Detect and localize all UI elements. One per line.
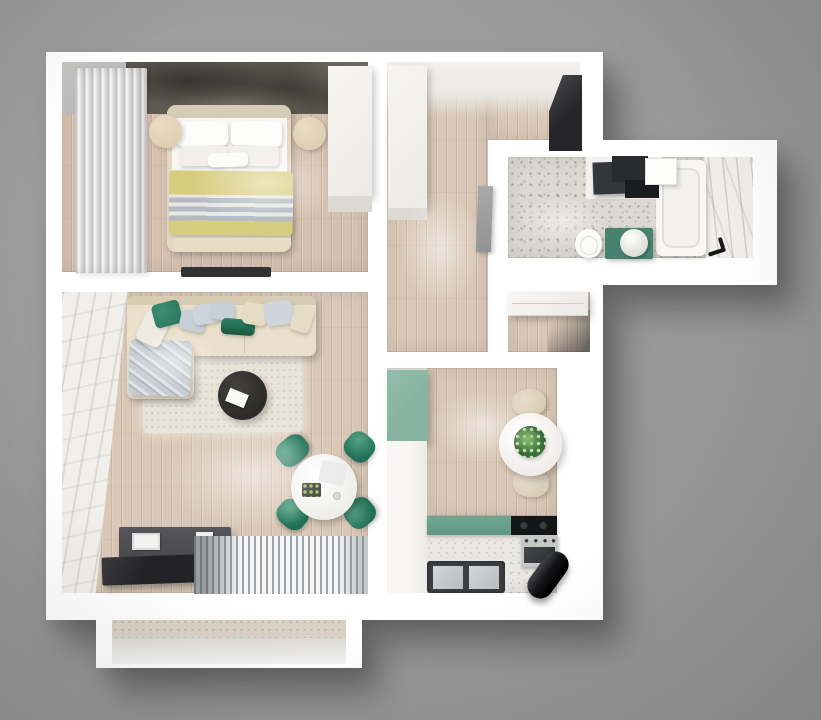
bed-footer xyxy=(173,238,291,251)
dining-table-tray xyxy=(302,483,321,497)
kitchen-white-column xyxy=(387,441,427,593)
sink-basin xyxy=(469,566,499,589)
vessel-sink xyxy=(620,229,648,257)
nook-corner-shadow xyxy=(548,310,590,352)
bedroom-wall-tv xyxy=(181,267,271,277)
nightstand-right xyxy=(293,117,326,150)
hallway-wardrobe xyxy=(388,66,427,208)
balcony-floor xyxy=(112,618,346,640)
nook-drawer-cabinet xyxy=(508,292,588,316)
apartment-footprint xyxy=(0,0,821,720)
render-canvas xyxy=(0,0,821,720)
shower-marble-wall xyxy=(704,157,753,258)
bed-pillow xyxy=(231,120,283,147)
kitchen-green-cabinet xyxy=(387,370,428,441)
kitchen-sink xyxy=(427,561,505,593)
cooktop xyxy=(511,516,557,535)
leaning-door-panel xyxy=(476,186,493,252)
hallway-wardrobe-base xyxy=(388,208,427,220)
washer-box xyxy=(645,158,677,185)
console-decor xyxy=(132,533,160,550)
bedroom-wardrobe xyxy=(328,66,372,196)
tv-panel xyxy=(102,554,199,585)
striped-mat xyxy=(194,536,368,594)
toilet xyxy=(575,229,602,258)
bedroom-wardrobe-base xyxy=(328,196,372,212)
toilet-seat-ring xyxy=(580,236,598,255)
dining-table-glass xyxy=(333,492,341,500)
throw-blanket xyxy=(128,339,192,397)
bed-small-pillow xyxy=(208,152,248,167)
sink-basin xyxy=(433,566,463,589)
blanket-gray-stripes xyxy=(169,194,293,221)
bed-yellow-blanket xyxy=(169,170,294,235)
bed-pillow xyxy=(177,120,229,147)
balcony-face xyxy=(112,638,346,664)
dark-cabinet xyxy=(612,156,648,182)
nightstand-left xyxy=(149,115,182,148)
table-plant xyxy=(514,426,546,458)
drawer-line xyxy=(512,303,584,304)
curtains xyxy=(75,68,147,273)
